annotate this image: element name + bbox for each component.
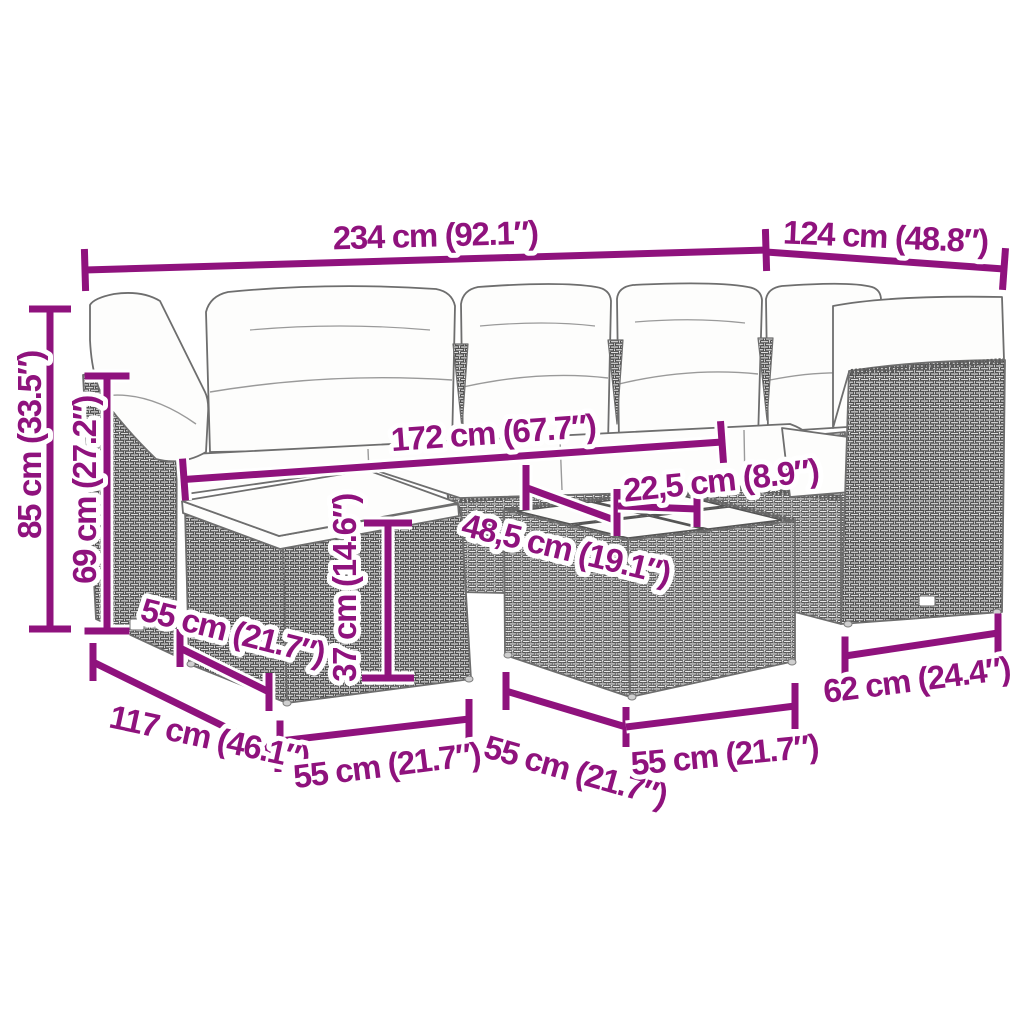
- svg-text:234 cm (92.1″): 234 cm (92.1″): [332, 214, 538, 257]
- svg-text:37 cm (14.6″): 37 cm (14.6″): [326, 494, 363, 682]
- svg-text:85 cm (33.5″): 85 cm (33.5″): [11, 351, 48, 539]
- svg-text:69 cm (27.2″): 69 cm (27.2″): [66, 396, 103, 584]
